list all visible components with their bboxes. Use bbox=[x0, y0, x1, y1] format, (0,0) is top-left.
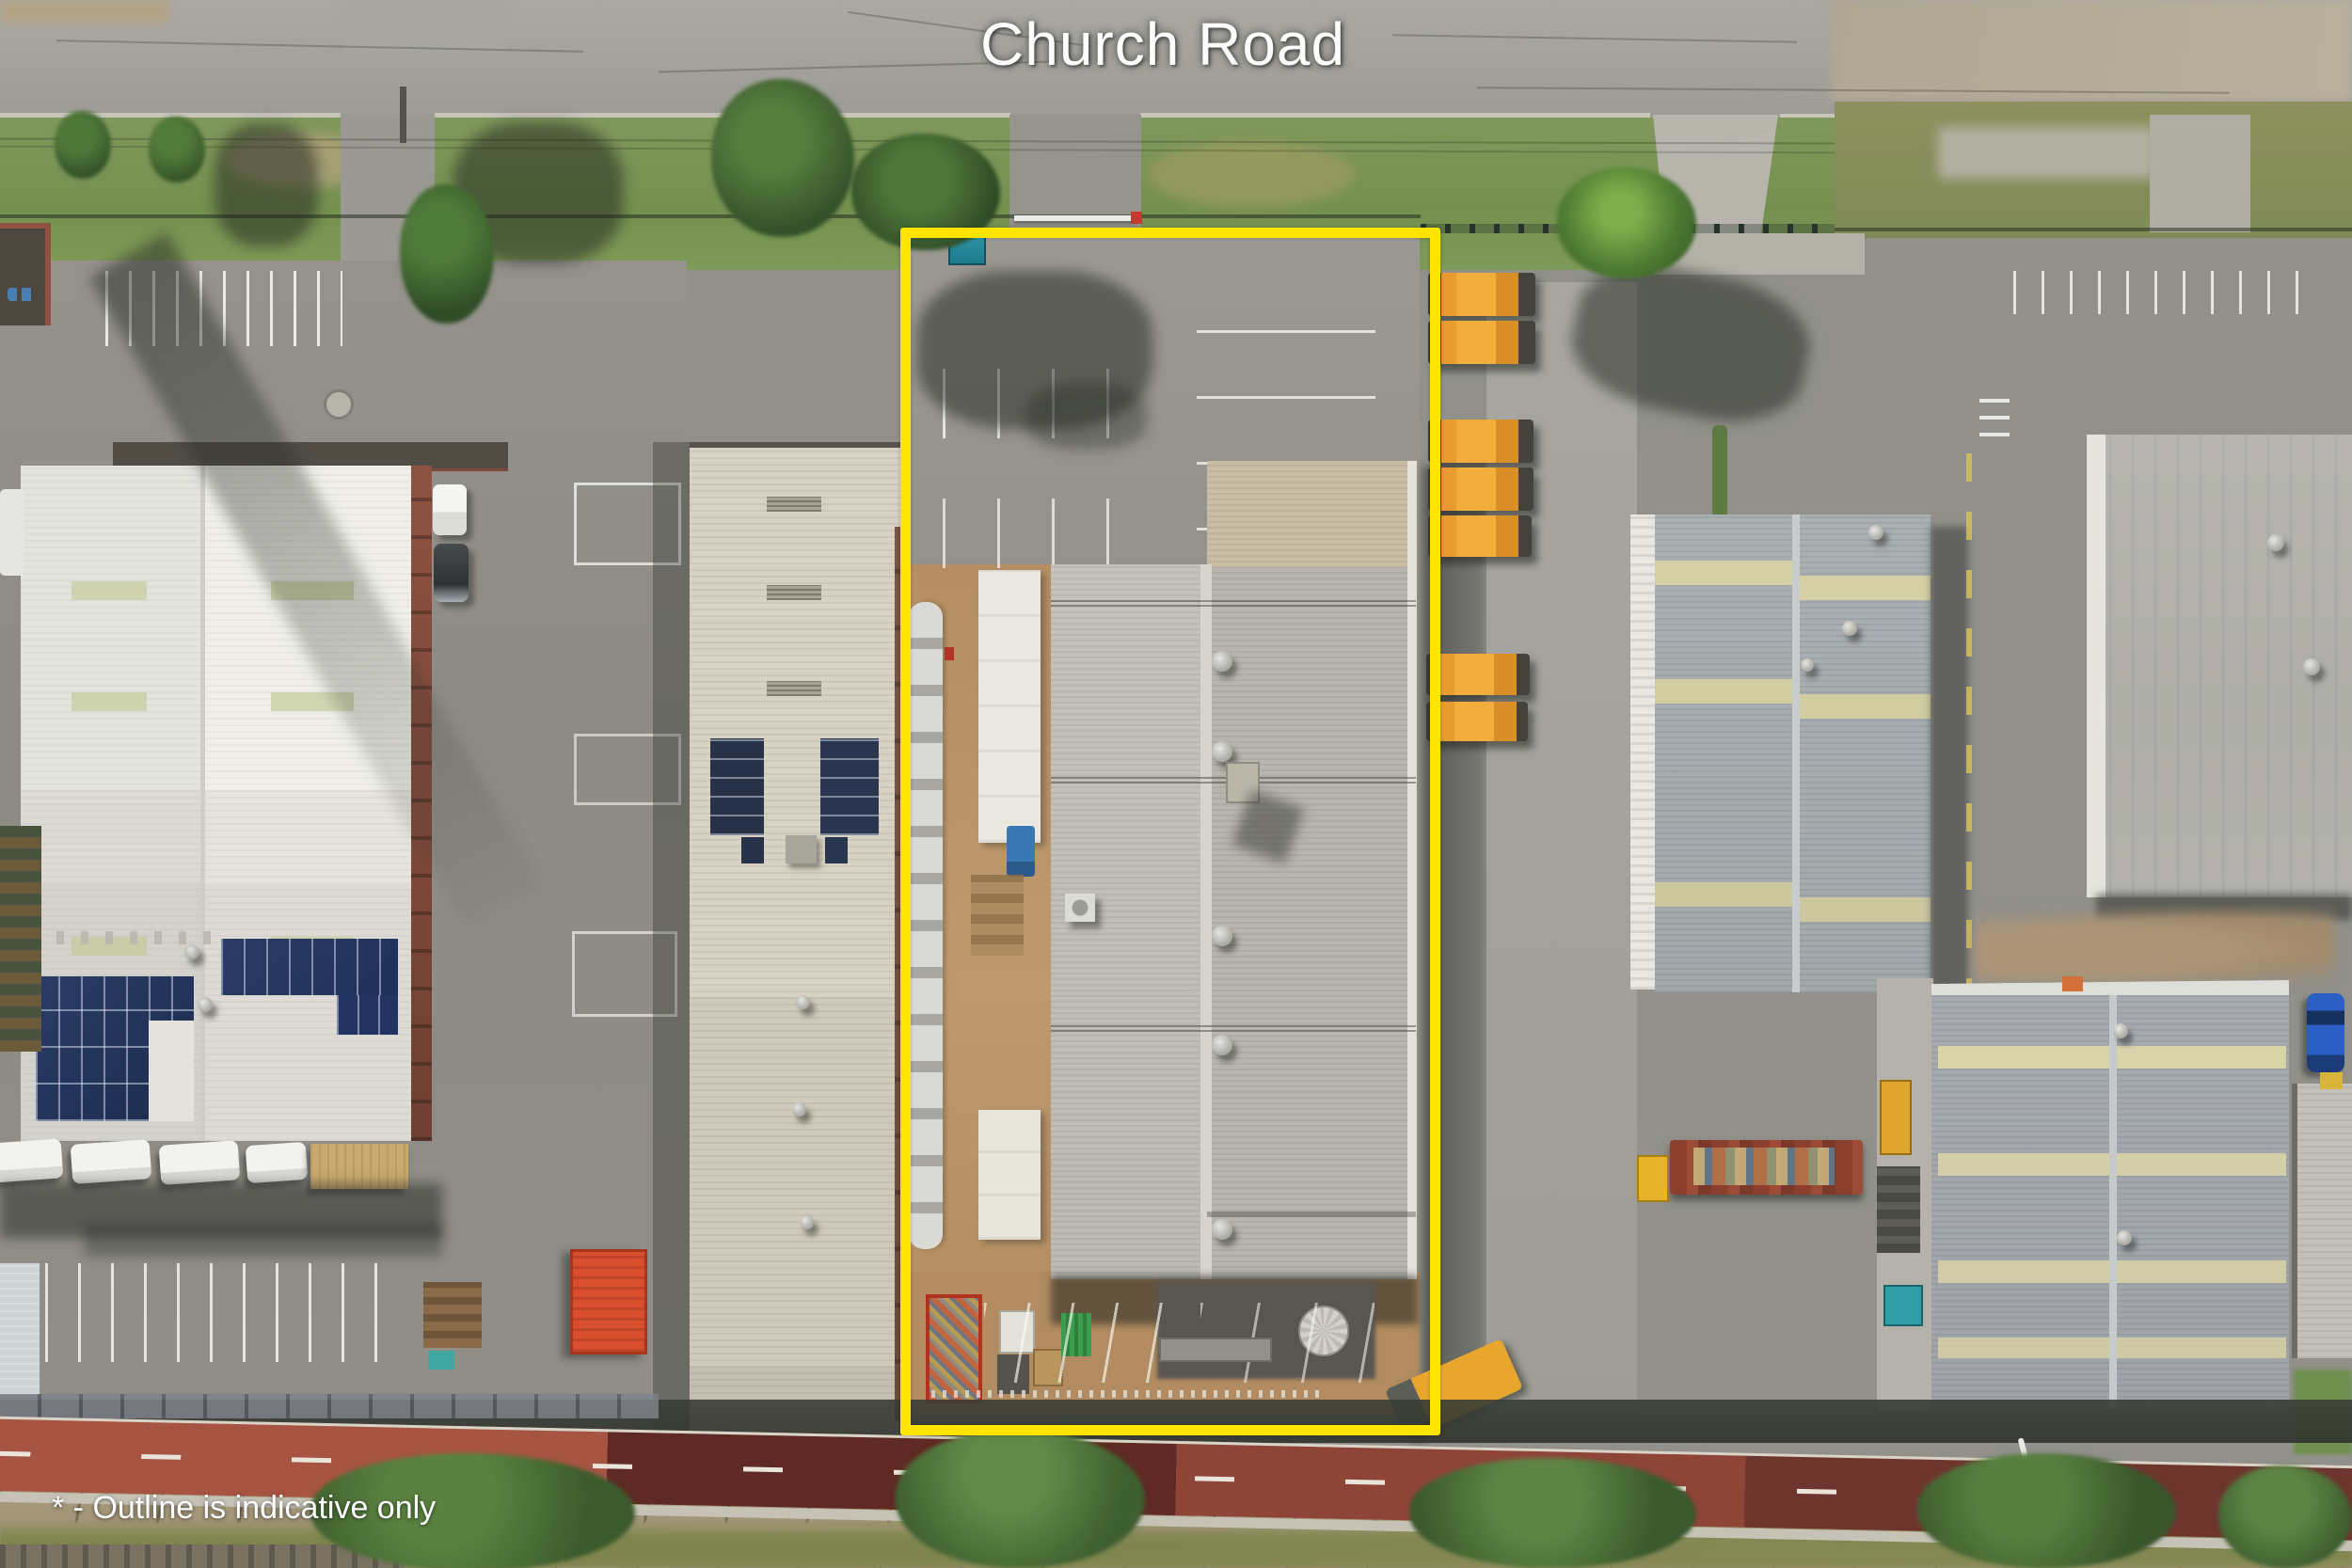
vent-strip bbox=[767, 497, 821, 512]
property-outline bbox=[900, 228, 1440, 1435]
garden-strip bbox=[1712, 425, 1727, 519]
white-ute bbox=[433, 484, 467, 535]
corner-tree bbox=[400, 184, 494, 324]
palm-tree bbox=[1557, 167, 1696, 278]
roof-vent bbox=[792, 1102, 806, 1117]
kerb-marks bbox=[1979, 393, 2010, 436]
teal-crate bbox=[428, 1351, 454, 1370]
trailer-cargo bbox=[1693, 1148, 1835, 1185]
roof-plant-box bbox=[786, 835, 817, 863]
white-van bbox=[159, 1140, 241, 1185]
solar-array bbox=[820, 738, 879, 835]
skylight-strip bbox=[1796, 897, 1931, 922]
wheel-loader bbox=[1428, 515, 1532, 557]
wheel-loader bbox=[1428, 273, 1535, 316]
roof-pipes bbox=[56, 931, 216, 944]
white-van bbox=[0, 1138, 63, 1182]
rear-awning-panels bbox=[0, 1394, 659, 1418]
bottom-tree bbox=[1917, 1453, 2176, 1568]
roof-vent bbox=[2113, 1023, 2128, 1038]
road-name-label: Church Road bbox=[980, 9, 1345, 79]
yellow-trailer bbox=[2320, 1072, 2343, 1089]
wheel-loader bbox=[1426, 702, 1528, 741]
skylight-strip bbox=[1655, 679, 1796, 704]
orange-tile-roof bbox=[1726, 420, 1919, 520]
skylight-strip bbox=[1796, 694, 1931, 719]
wheel-loader bbox=[1428, 321, 1535, 364]
vent-strip bbox=[767, 585, 821, 600]
roof-vent bbox=[198, 997, 213, 1012]
tan-container bbox=[310, 1144, 408, 1189]
parking-row-bottom bbox=[45, 1263, 401, 1362]
white-van bbox=[246, 1142, 309, 1183]
verge-concrete-pad bbox=[1938, 127, 2154, 179]
warehouse-a-ridge bbox=[200, 466, 205, 1141]
orange-rooftop-box bbox=[2062, 976, 2083, 991]
dirt-patches bbox=[1976, 911, 2333, 990]
warehouse-d-ridge bbox=[1792, 515, 1800, 992]
warehouse-d-east-shadow bbox=[1931, 527, 1968, 1039]
solar-array bbox=[741, 837, 764, 863]
white-van bbox=[71, 1139, 152, 1184]
aerial-photo: Church Road * - Outline is indicative on… bbox=[0, 0, 2352, 1568]
corner-shed bbox=[0, 223, 51, 325]
skylight-strip bbox=[1655, 561, 1796, 585]
warehouse-g-west-band bbox=[2087, 435, 2106, 897]
bottom-tree bbox=[2218, 1465, 2352, 1568]
verge-tree-shadow bbox=[215, 124, 318, 246]
warehouse-e-ridge bbox=[2109, 995, 2117, 1409]
roof-vent bbox=[2267, 534, 2284, 551]
verge-bush bbox=[149, 117, 205, 182]
teal-machine bbox=[1883, 1285, 1923, 1326]
power-pole bbox=[400, 87, 406, 143]
building-shadow bbox=[85, 1223, 442, 1257]
roof-vent bbox=[1868, 525, 1883, 540]
concrete-crossover bbox=[2150, 115, 2250, 232]
driveway-shadow bbox=[653, 442, 692, 1441]
yellow-machine bbox=[1880, 1080, 1912, 1155]
left-edge-truck bbox=[0, 489, 24, 576]
pallet-stack bbox=[423, 1282, 482, 1348]
solar-array bbox=[337, 995, 398, 1035]
roof-vent bbox=[1842, 621, 1857, 636]
wheel-loader bbox=[1428, 420, 1534, 463]
roof-vent bbox=[2303, 658, 2320, 675]
skylight bbox=[72, 581, 147, 600]
yellow-forklift bbox=[1637, 1155, 1669, 1202]
verge-bush bbox=[55, 111, 111, 179]
solar-array bbox=[825, 837, 848, 863]
parking-lines-right bbox=[2013, 271, 2324, 314]
bottom-tree bbox=[1409, 1458, 1696, 1568]
roof-vent bbox=[2117, 1230, 2132, 1245]
dark-suv bbox=[434, 544, 469, 602]
red-shipping-container bbox=[570, 1249, 647, 1354]
fence bbox=[1835, 228, 2352, 231]
warehouse-f-roof bbox=[2292, 1084, 2352, 1358]
boom-gate-post bbox=[1131, 212, 1142, 224]
yellow-lane-markings bbox=[1966, 423, 1972, 1006]
boom-gate bbox=[1014, 215, 1136, 221]
disclaimer-label: * - Outline is indicative only bbox=[52, 1490, 436, 1527]
small-building-bottom-left bbox=[0, 1263, 40, 1395]
left-edge-racks bbox=[0, 826, 41, 1052]
bottom-tree bbox=[896, 1430, 1145, 1568]
blue-car bbox=[2307, 993, 2344, 1072]
blue-drums bbox=[8, 288, 36, 301]
roof-vent bbox=[800, 1215, 814, 1229]
fence bbox=[0, 214, 1421, 218]
skylight bbox=[72, 692, 147, 711]
manhole-circle bbox=[324, 389, 354, 420]
roof-vent bbox=[184, 944, 199, 959]
skylight-strip bbox=[1796, 576, 1931, 600]
solar-array bbox=[221, 939, 398, 995]
big-leafy-tree bbox=[711, 79, 854, 237]
road-concrete-top-right bbox=[1830, 0, 2352, 102]
skylight-strip bbox=[1655, 882, 1796, 907]
solar-array-notch bbox=[149, 1021, 194, 1121]
wheel-loader bbox=[1428, 467, 1534, 511]
dark-clutter bbox=[1877, 1166, 1920, 1253]
warehouse-d-west-wall bbox=[1630, 515, 1655, 990]
road-dirt-top-left bbox=[0, 0, 169, 23]
wheel-loader bbox=[1426, 654, 1530, 695]
solar-array bbox=[710, 738, 764, 835]
roof-vent bbox=[1801, 658, 1814, 672]
vent-strip bbox=[767, 681, 821, 696]
roof-vent bbox=[796, 995, 810, 1009]
side-road-intersection bbox=[343, 0, 508, 52]
